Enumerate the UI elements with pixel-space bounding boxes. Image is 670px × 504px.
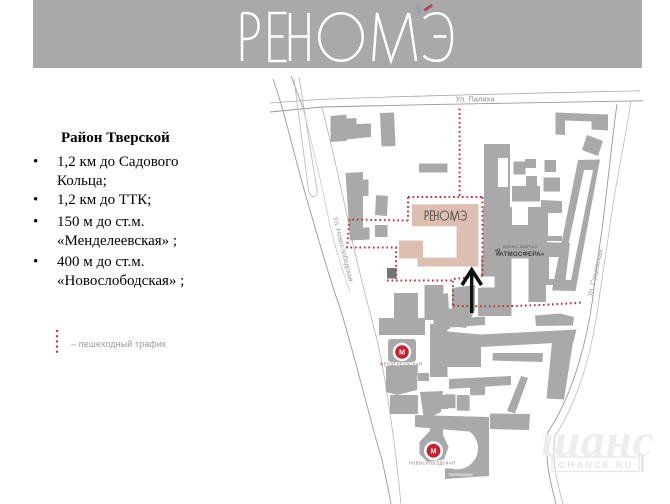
svg-text:Ул. Сущевская: Ул. Сущевская (587, 249, 605, 298)
svg-text:«АТМОСФЕРА»: «АТМОСФЕРА» (496, 251, 545, 258)
svg-text:БИЗНЕС-КВАРТАЛ: БИЗНЕС-КВАРТАЛ (503, 245, 537, 249)
svg-text:М: М (431, 446, 437, 455)
svg-text:НОВОСЛОБОДСКАЯ: НОВОСЛОБОДСКАЯ (409, 461, 456, 466)
svg-text:CHANCE.RU: CHANCE.RU (559, 460, 634, 471)
svg-text:Ул. Палиха: Ул. Палиха (456, 95, 496, 104)
svg-text:М: М (399, 347, 405, 356)
svg-text:МЕНДЕЛЕЕВСКАЯ: МЕНДЕЛЕЕВСКАЯ (380, 362, 422, 367)
